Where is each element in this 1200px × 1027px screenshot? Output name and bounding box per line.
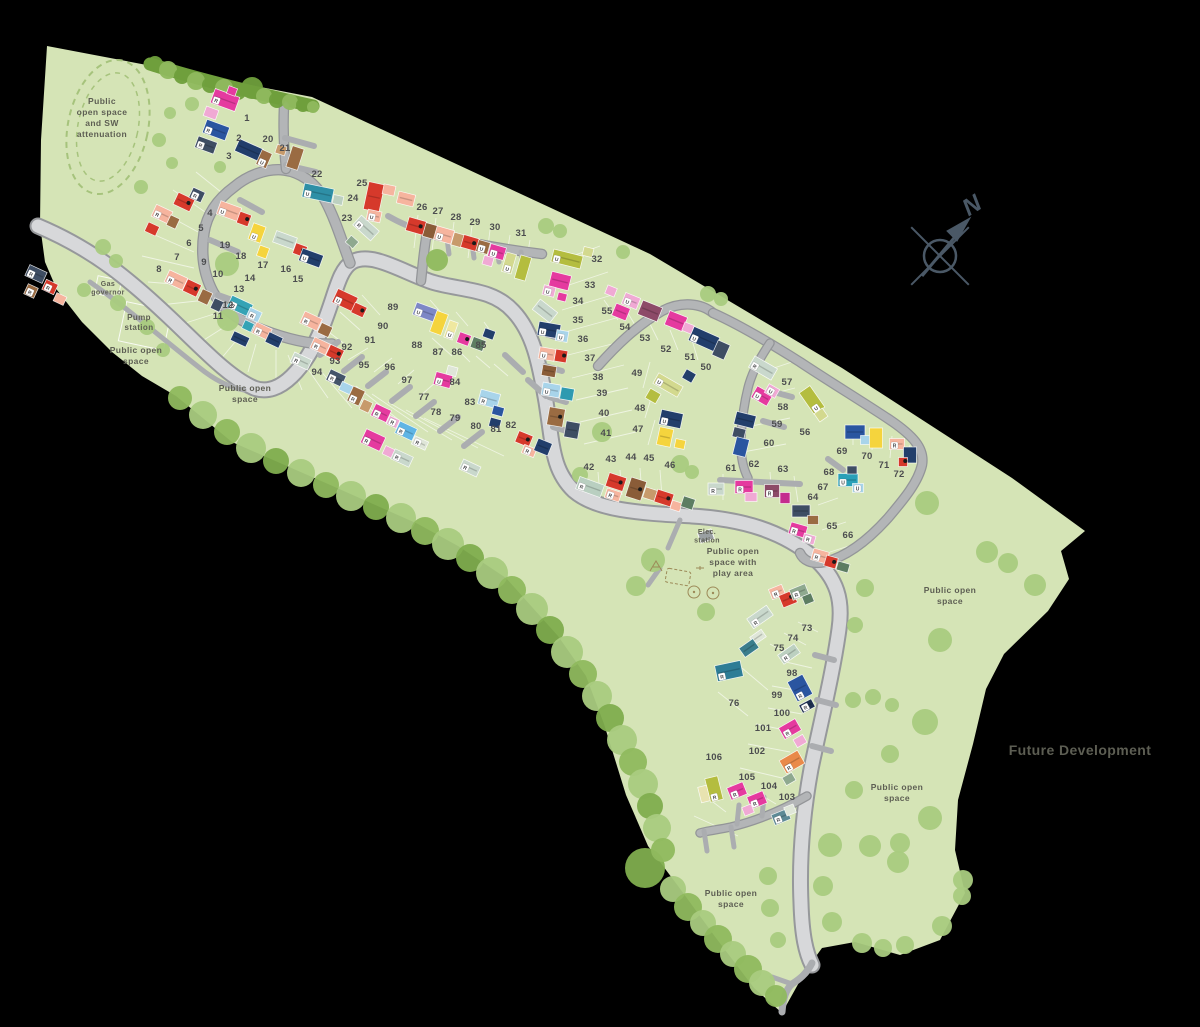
site-plan: RRRUURUUUUUUUUUUURRUUUURUUURRRRRRUURRRRR… [0, 0, 1200, 1027]
drive-r [704, 831, 707, 851]
house: U [555, 330, 569, 343]
plot-number: 92 [342, 342, 353, 353]
plot-number: 60 [764, 438, 775, 449]
tree-icon [626, 576, 646, 596]
tree-icon [881, 745, 899, 763]
tree-icon [77, 283, 91, 297]
tree-icon [287, 459, 315, 487]
tree-icon [859, 835, 881, 857]
plot-number: 14 [245, 273, 256, 284]
tree-icon [998, 553, 1018, 573]
plot-number: 5 [198, 223, 204, 234]
tree-icon [152, 133, 166, 147]
tree-icon [187, 72, 205, 90]
label-future-development: Future Development [1009, 742, 1152, 758]
plot-number: 63 [778, 464, 789, 475]
tree-icon [918, 806, 942, 830]
plot-number: 29 [470, 217, 481, 228]
plot-number: 33 [585, 280, 596, 291]
plot-number: 39 [597, 388, 608, 399]
plot-number: 87 [433, 347, 444, 358]
plot-number: 45 [644, 453, 655, 464]
plot-number: 28 [451, 212, 462, 223]
plot-number: 46 [665, 460, 676, 471]
plot-number: 17 [258, 260, 269, 271]
plot-number: 34 [573, 296, 584, 307]
plot-number: 22 [312, 169, 323, 180]
house: R [890, 439, 905, 450]
tree-icon [928, 628, 952, 652]
tree-icon [887, 851, 909, 873]
plot-number: 85 [476, 340, 487, 351]
house [899, 458, 908, 467]
plot-number: 64 [808, 492, 819, 503]
tree-icon [641, 548, 665, 572]
plot-number: 69 [837, 446, 848, 457]
plot-number: 104 [761, 781, 778, 792]
plot-number: 83 [465, 397, 476, 408]
tree-icon [263, 448, 289, 474]
house [808, 516, 819, 525]
tenure-badge-letter: R [711, 489, 715, 495]
house: U [541, 382, 561, 398]
plot-number: 26 [417, 202, 428, 213]
tree-icon [426, 249, 448, 271]
tree-icon [95, 239, 111, 255]
plot-number: 98 [787, 668, 798, 679]
house: R [735, 481, 753, 494]
plot-number: 36 [578, 334, 589, 345]
plot-number: 78 [431, 407, 442, 418]
tree-icon [874, 939, 892, 957]
tree-icon [214, 161, 226, 173]
plot-number: 47 [633, 424, 644, 435]
tree-icon [896, 936, 914, 954]
plot-number: 100 [774, 708, 790, 719]
plot-number: 95 [359, 360, 370, 371]
plot-number: 99 [772, 690, 783, 701]
plot-number: 48 [635, 403, 646, 414]
tree-icon [852, 933, 872, 953]
plot-number: 25 [357, 178, 368, 189]
house [382, 184, 396, 196]
plot-number: 93 [330, 356, 341, 367]
plot-number: 61 [726, 463, 737, 474]
tree-icon [164, 107, 176, 119]
house [560, 387, 575, 401]
tree-icon [700, 286, 716, 302]
tree-icon [214, 419, 240, 445]
plot-number: 42 [584, 462, 595, 473]
tree-icon [770, 932, 786, 948]
plot-number: 70 [862, 451, 873, 462]
house: U [538, 347, 556, 362]
tree-icon [761, 899, 779, 917]
plot-number: 38 [593, 372, 604, 383]
plot-number: 1 [244, 113, 250, 124]
plot-number: 54 [620, 322, 631, 333]
plot-number: 97 [402, 375, 413, 386]
plot-number: 58 [778, 402, 789, 413]
plot-number: 75 [774, 643, 785, 654]
plot-number: 53 [640, 333, 651, 344]
tree-icon [336, 481, 366, 511]
tree-icon [765, 985, 787, 1007]
tree-icon [313, 472, 339, 498]
tree-icon [890, 833, 910, 853]
tree-icon [932, 916, 952, 936]
tree-icon [1024, 574, 1046, 596]
tenure-badge-letter: R [893, 444, 897, 450]
plot-number: 8 [156, 264, 161, 275]
plot-number: 18 [236, 251, 247, 262]
plot-number: 72 [894, 469, 905, 480]
tree-icon [822, 912, 842, 932]
house [780, 493, 790, 504]
plot-number: 71 [879, 460, 890, 471]
tree-icon [282, 94, 298, 110]
tree-icon [915, 491, 939, 515]
tree-icon [189, 401, 217, 429]
plot-number: 96 [385, 362, 396, 373]
plot-number: 103 [779, 792, 795, 803]
tree-icon [976, 541, 998, 563]
plot-number: 30 [490, 222, 501, 233]
tree-icon [845, 692, 861, 708]
plot-number: 41 [601, 428, 612, 439]
plot-number: 23 [342, 213, 353, 224]
tenure-badge-letter: U [856, 487, 860, 493]
tree-icon [538, 218, 554, 234]
drive-61-63 [720, 480, 800, 484]
plot-number: 9 [201, 257, 206, 268]
tree-icon [953, 870, 973, 890]
plot-number: 66 [843, 530, 854, 541]
tree-icon [616, 245, 630, 259]
plot-number: 19 [220, 240, 231, 251]
plot-number: 65 [827, 521, 838, 532]
tree-icon [845, 781, 863, 799]
plot-number: 62 [749, 459, 760, 470]
marker-dot-icon [903, 459, 907, 463]
house: U [366, 209, 382, 223]
plot-number: 27 [433, 206, 444, 217]
label-open-space-play: Public openspace withplay area [707, 546, 760, 578]
tree-icon [168, 386, 192, 410]
label-elec-station: Elec.station [694, 529, 720, 545]
house [870, 428, 883, 448]
tree-icon [236, 433, 266, 463]
plot-number: 49 [632, 368, 643, 379]
tree-icon [110, 295, 126, 311]
plot-number: 32 [592, 254, 603, 265]
plot-number: 43 [606, 454, 617, 465]
plot-number: 6 [186, 238, 191, 249]
tree-icon [134, 180, 148, 194]
tree-icon [818, 833, 842, 857]
plot-number: 55 [602, 306, 613, 317]
tree-icon [166, 157, 178, 169]
plot-number: 89 [388, 302, 399, 313]
plot-number: 88 [412, 340, 423, 351]
plot-number: 44 [626, 452, 637, 463]
tree-icon [759, 867, 777, 885]
plot-number: 2 [236, 133, 241, 144]
drive-q [731, 827, 734, 847]
plot-number: 31 [516, 228, 527, 239]
house [541, 364, 557, 377]
plot-number: 7 [174, 252, 179, 263]
plot-number: 21 [280, 143, 291, 154]
tree-icon [912, 709, 938, 735]
plot-number: 13 [234, 284, 245, 295]
plot-number: 77 [419, 392, 430, 403]
tree-icon [865, 689, 881, 705]
plot-number: 105 [739, 772, 756, 783]
tree-icon [847, 617, 863, 633]
plot-number: 73 [802, 623, 813, 634]
plot-number: 91 [365, 335, 376, 346]
plot-number: 50 [701, 362, 712, 373]
plot-number: 80 [471, 421, 482, 432]
tenure-badge-letter: R [738, 488, 742, 494]
plot-number: 24 [348, 193, 359, 204]
plot-number: 10 [213, 269, 224, 280]
plot-number: 12 [223, 300, 234, 311]
plot-number: 15 [293, 274, 304, 285]
tenure-badge-letter: U [841, 481, 845, 487]
plot-number: 76 [729, 698, 740, 709]
tenure-badge-letter: R [768, 492, 772, 498]
house: R [765, 485, 780, 498]
house [564, 421, 581, 439]
site-plan-map: RRRUURUUUUUUUUUUURRUUUURUUURRRRRRUURRRRR… [0, 0, 1200, 1027]
plot-number: 57 [782, 377, 793, 388]
plot-number: 79 [450, 413, 461, 424]
plot-number: 59 [772, 419, 783, 430]
plot-number: 102 [749, 746, 765, 757]
plot-number: 106 [706, 752, 722, 763]
tree-icon [856, 579, 874, 597]
label-pump-station: Pumpstation [124, 313, 153, 332]
tree-icon [685, 465, 699, 479]
plot-number: 84 [450, 377, 461, 388]
plot-number: 94 [312, 367, 323, 378]
plot-number: 74 [788, 633, 799, 644]
house: R [708, 483, 724, 495]
house [554, 349, 568, 363]
tree-icon [185, 97, 199, 111]
tree-icon [307, 101, 319, 113]
tree-icon [109, 254, 123, 268]
plot-number: 51 [685, 352, 696, 363]
tree-icon [813, 876, 833, 896]
plot-number: 52 [661, 344, 672, 355]
plot-number: 90 [378, 321, 389, 332]
house: U [853, 484, 864, 493]
plot-number: 101 [755, 723, 772, 734]
plot-number: 40 [599, 408, 610, 419]
tree-icon [553, 224, 567, 238]
plot-number: 35 [573, 315, 584, 326]
tree-icon [363, 494, 389, 520]
house [847, 466, 857, 474]
house [745, 493, 757, 502]
plot-number: 68 [824, 467, 835, 478]
plot-number: 81 [491, 424, 502, 435]
tree-icon [953, 887, 971, 905]
tree-icon [651, 838, 675, 862]
tree-icon [643, 814, 671, 842]
tree-icon [697, 603, 715, 621]
plot-number: 3 [226, 151, 231, 162]
plot-number: 86 [452, 347, 463, 358]
plot-number: 16 [281, 264, 292, 275]
house [547, 407, 566, 428]
house [674, 439, 686, 450]
plot-number: 37 [585, 353, 596, 364]
tree-icon [885, 698, 899, 712]
plot-number: 67 [818, 482, 829, 493]
plot-number: 20 [263, 134, 274, 145]
house [557, 292, 568, 302]
plot-number: 56 [800, 427, 811, 438]
plot-number: 11 [213, 311, 224, 322]
plot-number: 4 [207, 208, 213, 219]
plot-number: 82 [506, 420, 517, 431]
house [332, 195, 344, 206]
tree-icon [714, 292, 728, 306]
drive-t [737, 805, 739, 824]
